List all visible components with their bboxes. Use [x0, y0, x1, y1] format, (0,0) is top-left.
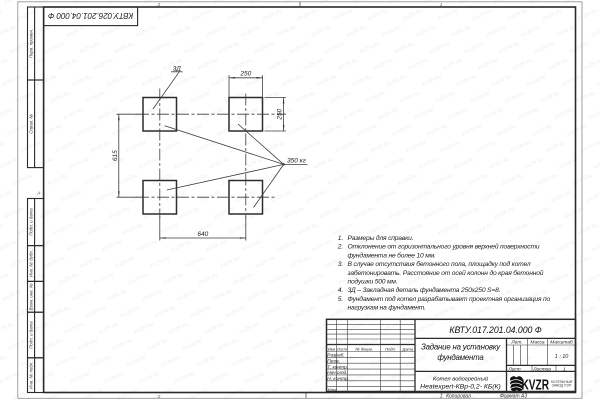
svg-text:KVZR.Ru: KVZR.Ru [47, 173, 69, 187]
svg-text:KVZR.Ru: KVZR.Ru [1, 288, 23, 302]
svg-text:KVZR.Ru: KVZR.Ru [580, 140, 600, 154]
svg-text:KVZR.Ru: KVZR.Ru [289, 255, 311, 269]
svg-text:KVZR.Ru: KVZR.Ru [112, 338, 134, 352]
svg-text:KVZR.Ru: KVZR.Ru [0, 57, 9, 71]
svg-text:KVZR.Ru: KVZR.Ru [464, 41, 486, 55]
svg-text:KVZR.Ru: KVZR.Ru [534, 255, 556, 269]
svg-text:KVZR.Ru: KVZR.Ru [542, 222, 564, 236]
svg-text:KVZR.Ru: KVZR.Ru [217, 338, 239, 352]
svg-text:KVZR.Ru: KVZR.Ru [542, 8, 564, 22]
svg-text:KVZR.Ru: KVZR.Ru [254, 41, 276, 55]
svg-text:KVZR.Ru: KVZR.Ru [114, 41, 136, 55]
svg-text:KVZR.Ru: KVZR.Ru [504, 90, 526, 104]
svg-text:KVZR.Ru: KVZR.Ru [472, 8, 494, 22]
svg-text:KVZR.Ru: KVZR.Ru [55, 354, 77, 368]
svg-text:KVZR.Ru: KVZR.Ru [485, 24, 507, 38]
svg-text:KVZR.Ru: KVZR.Ru [410, 189, 432, 203]
svg-text:KVZR.Ru: KVZR.Ru [593, 156, 600, 170]
svg-text:1 : 10: 1 : 10 [555, 354, 570, 360]
svg-text:KVZR.Ru: KVZR.Ru [127, 57, 149, 71]
svg-text:KVZR.Ru: KVZR.Ru [136, 239, 158, 253]
svg-text:KVZR.Ru: KVZR.Ru [22, 57, 44, 71]
svg-text:фундамента не более 10 мм.: фундамента не более 10 мм. [348, 251, 437, 259]
svg-text:KVZR.Ru: KVZR.Ru [71, 288, 93, 302]
svg-text:KVZR.Ru: KVZR.Ru [370, 140, 392, 154]
svg-text:KVZR.Ru: KVZR.Ru [386, 74, 408, 88]
svg-text:KVZR.Ru: KVZR.Ru [197, 57, 219, 71]
svg-text:KVZR.Ru: KVZR.Ru [399, 90, 421, 104]
svg-text:KVZR.Ru: KVZR.Ru [321, 123, 343, 137]
svg-text:KVZR.Ru: KVZR.Ru [588, 107, 600, 121]
svg-text:KVZR.Ru: KVZR.Ru [505, 305, 527, 319]
svg-text:4.: 4. [338, 287, 344, 294]
svg-text:KVZR.Ru: KVZR.Ru [477, 57, 499, 71]
svg-text:KVZR.Ru: KVZR.Ru [181, 123, 203, 137]
svg-text:KVZR.Ru: KVZR.Ru [74, 206, 96, 220]
svg-text:KVZR.Ru: KVZR.Ru [219, 41, 241, 55]
svg-text:KVZR.Ru: KVZR.Ru [0, 156, 20, 170]
svg-text:KVZR.Ru: KVZR.Ru [227, 8, 249, 22]
svg-text:KVZR.Ru: KVZR.Ru [518, 107, 540, 121]
svg-text:KVZR.Ru: KVZR.Ru [585, 189, 600, 203]
svg-text:KVZR.Ru: KVZR.Ru [303, 272, 325, 286]
svg-text:KVZR.Ru: KVZR.Ru [190, 305, 212, 319]
svg-text:KVZR.Ru: KVZR.Ru [305, 189, 327, 203]
svg-text:KVZR.Ru: KVZR.Ru [230, 140, 252, 154]
svg-text:KVZR.Ru: KVZR.Ru [0, 8, 4, 22]
svg-text:KVZR.Ru: KVZR.Ru [308, 107, 330, 121]
svg-text:KVZR.Ru: KVZR.Ru [493, 0, 515, 6]
svg-text:KVZR.Ru: KVZR.Ru [90, 140, 112, 154]
svg-text:KVZR.Ru: KVZR.Ru [0, 239, 18, 253]
svg-text:KVZR.Ru: KVZR.Ru [284, 206, 306, 220]
svg-text:Пров.: Пров. [327, 358, 340, 364]
svg-text:KVZR.Ru: KVZR.Ru [359, 41, 381, 55]
svg-text:KVZR.Ru: KVZR.Ru [292, 173, 314, 187]
svg-text:KVZR.Ru: KVZR.Ru [214, 206, 236, 220]
svg-text:KVZR.Ru: KVZR.Ru [345, 24, 367, 38]
svg-text:KVZR.Ru: KVZR.Ru [319, 206, 341, 220]
svg-text:KVZR.Ru: KVZR.Ru [300, 354, 322, 368]
svg-text:KVZR.Ru: KVZR.Ru [52, 222, 74, 236]
svg-text:250: 250 [239, 71, 251, 78]
svg-text:KVZR.Ru: KVZR.Ru [262, 222, 284, 236]
svg-text:KVZR.Ru: KVZR.Ru [547, 57, 569, 71]
svg-text:Листов: Листов [532, 366, 551, 372]
svg-text:KVZR.Ru: KVZR.Ru [243, 156, 265, 170]
svg-text:KVZR.Ru: KVZR.Ru [456, 74, 478, 88]
svg-text:KVZR.Ru: KVZR.Ru [108, 0, 130, 6]
svg-text:KVZR.Ru: KVZR.Ru [316, 288, 338, 302]
svg-text:KVZR.Ru: KVZR.Ru [574, 90, 596, 104]
svg-text:KVZR.Ru: KVZR.Ru [209, 371, 231, 385]
svg-text:KVZR.Ru: KVZR.Ru [426, 123, 448, 137]
svg-text:KVZR.Ru: KVZR.Ru [138, 156, 160, 170]
svg-text:5.: 5. [338, 296, 344, 303]
svg-text:KVZR.Ru: KVZR.Ru [44, 255, 66, 269]
svg-text:Масса: Масса [530, 339, 545, 345]
svg-text:KVZR.Ru: KVZR.Ru [432, 173, 454, 187]
svg-text:KVZR.Ru: KVZR.Ru [279, 371, 301, 385]
svg-text:Инв. № дубл.: Инв. № дубл. [29, 250, 34, 277]
svg-text:KVZR.Ru: KVZR.Ru [49, 90, 71, 104]
svg-text:KVZR.Ru: KVZR.Ru [302, 57, 324, 71]
svg-text:KVZR.Ru: KVZR.Ru [0, 321, 15, 335]
svg-text:KVZR.Ru: KVZR.Ru [402, 8, 424, 22]
svg-text:Лист: Лист [336, 346, 348, 351]
svg-text:KVZR.Ru: KVZR.Ru [295, 305, 317, 319]
svg-text:KVZR.Ru: KVZR.Ru [101, 239, 123, 253]
svg-text:№ докум.: № докум. [355, 346, 373, 351]
svg-text:KVZR.Ru: KVZR.Ru [450, 24, 472, 38]
svg-text:забетонировать. Расстояние от: забетонировать. Расстояние от осей колон… [347, 269, 544, 277]
svg-text:KVZR.Ru: KVZR.Ru [230, 354, 252, 368]
svg-text:KVZR.Ru: KVZR.Ru [125, 354, 147, 368]
svg-text:KVZR.Ru: KVZR.Ru [20, 140, 42, 154]
svg-text:KVZR.Ru: KVZR.Ru [55, 140, 77, 154]
svg-text:KVZR.Ru: KVZR.Ru [413, 107, 435, 121]
svg-text:KVZR.Ru: KVZR.Ru [93, 272, 115, 286]
svg-text:KVZR.Ru: KVZR.Ru [499, 41, 521, 55]
svg-text:KVZR.Ru: KVZR.Ru [82, 173, 104, 187]
svg-text:KVZR.Ru: KVZR.Ru [351, 74, 373, 88]
svg-text:KVZR.Ru: KVZR.Ru [114, 255, 136, 269]
svg-text:Отклонение от горизонтального: Отклонение от горизонтального уровня вер… [348, 243, 540, 251]
svg-text:KVZR.Ru: KVZR.Ru [23, 272, 45, 286]
svg-text:KVZR.Ru: KVZR.Ru [130, 189, 152, 203]
svg-text:KVZR.Ru: KVZR.Ru [139, 371, 161, 385]
svg-text:KVZR.Ru: KVZR.Ru [208, 156, 230, 170]
svg-text:KVZR.Ru: KVZR.Ru [0, 272, 10, 286]
svg-text:KVZR.Ru: KVZR.Ru [340, 189, 362, 203]
svg-text:KVZR.Ru: KVZR.Ru [182, 338, 204, 352]
svg-text:KVZR.Ru: KVZR.Ru [440, 140, 462, 154]
svg-text:KVZR.Ru: KVZR.Ru [95, 189, 117, 203]
svg-text:KVZR.Ru: KVZR.Ru [583, 272, 600, 286]
svg-text:KVZR.Ru: KVZR.Ru [558, 156, 580, 170]
svg-text:KVZR.Ru: KVZR.Ru [596, 288, 600, 302]
svg-text:KVZR.Ru: KVZR.Ru [424, 206, 446, 220]
svg-text:KVZR.Ru: KVZR.Ru [109, 206, 131, 220]
svg-text:KVZR.Ru: KVZR.Ru [523, 156, 545, 170]
svg-text:KVZR.Ru: KVZR.Ru [332, 8, 354, 22]
svg-text:KVZR.Ru: KVZR.Ru [515, 189, 537, 203]
svg-text:KVZR.Ru: KVZR.Ru [588, 321, 600, 335]
svg-text:KVZR.Ru: KVZR.Ru [421, 74, 443, 88]
svg-text:KVZR.Ru: KVZR.Ru [125, 140, 147, 154]
svg-text:KVZR.Ru: KVZR.Ru [200, 189, 222, 203]
svg-text:KVZR.Ru: KVZR.Ru [219, 255, 241, 269]
svg-text:KVZR.Ru: KVZR.Ru [168, 321, 190, 335]
svg-text:KVZR.Ru: KVZR.Ru [241, 239, 263, 253]
svg-text:KVZR.Ru: KVZR.Ru [561, 74, 583, 88]
svg-text:KVZR.Ru: KVZR.Ru [310, 24, 332, 38]
svg-text:250: 250 [277, 108, 284, 120]
svg-text:KVZR.Ru: KVZR.Ru [318, 0, 340, 6]
svg-text:KVZR.Ru: KVZR.Ru [160, 354, 182, 368]
svg-text:3Д: 3Д [173, 66, 182, 73]
svg-text:KVZR.Ru: KVZR.Ru [566, 123, 588, 137]
svg-text:KVZR.Ru: KVZR.Ru [265, 354, 287, 368]
svg-text:1: 1 [440, 2, 443, 7]
svg-text:KVZR.Ru: KVZR.Ru [133, 321, 155, 335]
svg-text:Перв. примен.: Перв. примен. [29, 29, 34, 58]
svg-text:KVZR.Ru: KVZR.Ru [0, 140, 7, 154]
svg-text:KVZR.Ru: KVZR.Ru [528, 0, 550, 6]
svg-text:KVZR.Ru: KVZR.Ru [512, 57, 534, 71]
svg-text:Нач.отд.: Нач.отд. [327, 370, 347, 376]
svg-text:KVZR.Ru: KVZR.Ru [248, 0, 270, 6]
svg-text:KVZR.Ru: KVZR.Ru [135, 24, 157, 38]
svg-text:KVZR.Ru: KVZR.Ru [50, 305, 72, 319]
svg-text:3.: 3. [338, 261, 344, 268]
svg-text:KVZR.Ru: KVZR.Ru [555, 24, 577, 38]
svg-text:KVZR.Ru: KVZR.Ru [561, 288, 583, 302]
svg-text:KVZR.Ru: KVZR.Ru [171, 239, 193, 253]
svg-text:KVZR.Ru: KVZR.Ru [397, 173, 419, 187]
svg-text:KVZR.Ru: KVZR.Ru [594, 371, 600, 385]
svg-text:KVZR.Ru: KVZR.Ru [529, 206, 551, 220]
svg-text:KVZR.Ru: KVZR.Ru [577, 8, 599, 22]
svg-text:KVZR.Ru: KVZR.Ru [445, 189, 467, 203]
svg-text:KVZR.Ru: KVZR.Ru [520, 24, 542, 38]
svg-text:KVZR.Ru: KVZR.Ru [38, 0, 60, 6]
svg-text:KVZR.Ru: KVZR.Ru [206, 239, 228, 253]
svg-text:KVZR.Ru: KVZR.Ru [407, 57, 429, 71]
svg-text:KVZR.Ru: KVZR.Ru [6, 123, 28, 137]
svg-text:KVZR.Ru: KVZR.Ru [189, 90, 211, 104]
svg-text:KVZR.Ru: KVZR.Ru [510, 140, 532, 154]
svg-text:KVZR.Ru: KVZR.Ru [111, 123, 133, 137]
svg-text:KVZR.Ru: KVZR.Ru [496, 123, 518, 137]
svg-text:1: 1 [440, 393, 443, 399]
svg-text:KVZR.Ru: KVZR.Ru [141, 288, 163, 302]
svg-text:KVZR.Ru: KVZR.Ru [596, 74, 600, 88]
svg-text:KVZR.Ru: KVZR.Ru [268, 272, 290, 286]
svg-text:KVZR.Ru: KVZR.Ru [300, 140, 322, 154]
svg-text:KVZR.Ru: KVZR.Ru [117, 173, 139, 187]
svg-text:KVZR.Ru: KVZR.Ru [418, 156, 440, 170]
svg-text:ЗАВОД РЭП: ЗАВОД РЭП [552, 384, 572, 388]
svg-text:KVZR.Ru: KVZR.Ru [434, 90, 456, 104]
svg-text:KVZR.Ru: KVZR.Ru [0, 24, 17, 38]
svg-text:Лист: Лист [507, 366, 520, 372]
svg-text:KVZR.Ru: KVZR.Ru [163, 272, 185, 286]
svg-text:KVZR.Ru: KVZR.Ru [66, 239, 88, 253]
svg-text:KVZR.Ru: KVZR.Ru [3, 0, 25, 6]
svg-text:KVZR.Ru: KVZR.Ru [262, 8, 284, 22]
svg-text:KVZR.Ru: KVZR.Ru [176, 74, 198, 88]
svg-text:KVZR.Ru: KVZR.Ru [160, 140, 182, 154]
svg-text:KVZR.Ru: KVZR.Ru [413, 321, 435, 335]
svg-text:KVZR.Ru: KVZR.Ru [34, 371, 56, 385]
svg-text:KVZR.Ru: KVZR.Ru [205, 24, 227, 38]
svg-text:KVZR.Ru: KVZR.Ru [198, 272, 220, 286]
svg-text:KVZR.Ru: KVZR.Ru [143, 0, 165, 6]
svg-text:KVZR.Ru: KVZR.Ru [106, 288, 128, 302]
svg-text:KVZR.Ru: KVZR.Ru [388, 0, 410, 6]
svg-text:KVZR.Ru: KVZR.Ru [1, 74, 23, 88]
svg-text:KVZR.Ru: KVZR.Ru [470, 305, 492, 319]
svg-text:KVZR.Ru: KVZR.Ru [488, 156, 510, 170]
svg-text:KVZR.Ru: KVZR.Ru [233, 272, 255, 286]
svg-text:KVZR.Ru: KVZR.Ru [0, 354, 7, 368]
svg-text:KVZR.Ru: KVZR.Ru [157, 8, 179, 22]
svg-text:KVZR.Ru: KVZR.Ru [356, 123, 378, 137]
svg-text:KVZR.Ru: KVZR.Ru [63, 321, 85, 335]
svg-text:KVZR.Ru: KVZR.Ru [192, 8, 214, 22]
svg-text:KVZR.Ru: KVZR.Ru [337, 57, 359, 71]
svg-text:KVZR.Ru: KVZR.Ru [380, 24, 402, 38]
svg-text:KVZR.Ru: KVZR.Ru [92, 57, 114, 71]
svg-text:KVZR.Ru: KVZR.Ru [343, 321, 365, 335]
svg-text:KVZR.Ru: KVZR.Ru [244, 371, 266, 385]
svg-text:KVZR.Ru: KVZR.Ru [378, 107, 400, 121]
svg-text:КВТУ.026.201.04.000 Ф: КВТУ.026.201.04.000 Ф [47, 11, 133, 20]
svg-text:KVZR.Ru: KVZR.Ru [106, 74, 128, 88]
svg-text:KVZR.Ru: KVZR.Ru [0, 90, 1, 104]
svg-text:KVZR.Ru: KVZR.Ru [435, 305, 457, 319]
svg-text:KVZR.Ru: KVZR.Ru [362, 173, 384, 187]
svg-text:KVZR.Ru: KVZR.Ru [104, 371, 126, 385]
svg-text:KVZR.Ru: KVZR.Ru [60, 189, 82, 203]
svg-text:KVZR.Ru: KVZR.Ru [76, 123, 98, 137]
svg-text:KVZR.Ru: KVZR.Ru [149, 255, 171, 269]
svg-text:KVZR.Ru: KVZR.Ru [526, 74, 548, 88]
svg-text:KVZR.Ru: KVZR.Ru [539, 90, 561, 104]
svg-text:KVZR.Ru: KVZR.Ru [590, 24, 600, 38]
svg-text:Масштаб: Масштаб [550, 339, 573, 345]
svg-text:KVZR.Ru: KVZR.Ru [289, 41, 311, 55]
svg-text:KVZR.Ru: KVZR.Ru [211, 288, 233, 302]
svg-text:KVZR.Ru: KVZR.Ru [367, 8, 389, 22]
svg-text:фундамента: фундамента [437, 353, 484, 362]
svg-text:KVZR.Ru: KVZR.Ru [467, 173, 489, 187]
svg-text:KVZR.Ru: KVZR.Ru [354, 206, 376, 220]
svg-text:KVZR.Ru: KVZR.Ru [0, 222, 4, 236]
svg-text:KVZR.Ru: KVZR.Ru [0, 189, 12, 203]
svg-text:KVZR.Ru: KVZR.Ru [84, 90, 106, 104]
svg-text:KVZR.Ru: KVZR.Ru [335, 140, 357, 154]
svg-text:KVZR.Ru: KVZR.Ru [575, 305, 597, 319]
svg-text:KVZR.Ru: KVZR.Ru [349, 371, 371, 385]
svg-text:KVZR.Ru: KVZR.Ru [273, 321, 295, 335]
svg-text:KVZR.Ru: KVZR.Ru [540, 305, 562, 319]
svg-text:Взам. инв. №: Взам. инв. № [29, 283, 34, 310]
svg-text:KVZR.Ru: KVZR.Ru [389, 206, 411, 220]
svg-text:KVZR: KVZR [522, 377, 550, 393]
svg-text:KVZR.Ru: KVZR.Ru [405, 140, 427, 154]
svg-text:Копировал: Копировал [446, 393, 471, 399]
svg-text:KVZR.Ru: KVZR.Ru [283, 0, 305, 6]
svg-text:KVZR.Ru: KVZR.Ru [491, 74, 513, 88]
svg-text:KVZR.Ru: KVZR.Ru [364, 90, 386, 104]
svg-text:Фундамент под котел разрабатыв: Фундамент под котел разрабатывает проект… [348, 295, 551, 303]
svg-text:Подп.: Подп. [385, 346, 396, 351]
svg-text:нагрузкам на фундамент.: нагрузкам на фундамент. [348, 304, 427, 312]
svg-text:Дата: Дата [402, 346, 414, 351]
svg-text:KVZR.Ru: KVZR.Ru [157, 222, 179, 236]
svg-text:КВТУ.017.201.04.000 Ф: КВТУ.017.201.04.000 Ф [449, 325, 541, 335]
svg-text:KVZR.Ru: KVZR.Ru [475, 140, 497, 154]
svg-text:KVZR.Ru: KVZR.Ru [294, 90, 316, 104]
svg-text:А: А [36, 191, 40, 196]
svg-text:подушки 500 мм.: подушки 500 мм. [348, 278, 398, 286]
svg-text:Разраб.: Разраб. [327, 353, 344, 359]
svg-text:KVZR.Ru: KVZR.Ru [184, 41, 206, 55]
svg-text:KVZR.Ru: KVZR.Ru [429, 41, 451, 55]
svg-text:Heatexpert-КВр-0,2- КБ(К): Heatexpert-КВр-0,2- КБ(К) [420, 384, 501, 391]
svg-text:KVZR.Ru: KVZR.Ru [267, 57, 289, 71]
svg-text:KVZR.Ru: KVZR.Ru [469, 90, 491, 104]
svg-text:KVZR.Ru: KVZR.Ru [0, 107, 15, 121]
svg-text:KVZR.Ru: KVZR.Ru [453, 156, 475, 170]
svg-text:KVZR.Ru: KVZR.Ru [372, 57, 394, 71]
svg-text:KVZR.Ru: KVZR.Ru [36, 288, 58, 302]
svg-text:KVZR.Ru: KVZR.Ru [71, 74, 93, 88]
svg-text:KVZR.Ru: KVZR.Ru [240, 24, 262, 38]
svg-text:KVZR.Ru: KVZR.Ru [238, 321, 260, 335]
svg-text:KVZR.Ru: KVZR.Ru [12, 173, 34, 187]
svg-text:KVZR.Ru: KVZR.Ru [147, 338, 169, 352]
svg-text:KVZR.Ru: KVZR.Ru [225, 305, 247, 319]
svg-text:KVZR.Ru: KVZR.Ru [507, 222, 529, 236]
svg-text:640: 640 [197, 231, 208, 238]
svg-text:2: 2 [157, 2, 161, 7]
svg-text:Справ. №: Справ. № [29, 114, 34, 134]
svg-text:KVZR.Ru: KVZR.Ru [437, 222, 459, 236]
svg-text:KVZR.Ru: KVZR.Ru [461, 123, 483, 137]
svg-text:KVZR.Ru: KVZR.Ru [287, 338, 309, 352]
svg-text:KVZR.Ru: KVZR.Ru [69, 371, 91, 385]
svg-text:3Д – Закладная деталь фундамен: 3Д – Закладная деталь фундамента 250х250… [348, 286, 501, 294]
svg-text:Т. контр.: Т. контр. [327, 364, 348, 370]
svg-text:KVZR.Ru: KVZR.Ru [275, 24, 297, 38]
svg-text:KVZR.Ru: KVZR.Ru [442, 57, 464, 71]
svg-text:KVZR.Ru: KVZR.Ru [480, 189, 502, 203]
svg-text:350 кг: 350 кг [287, 158, 307, 165]
svg-text:KVZR.Ru: KVZR.Ru [100, 24, 122, 38]
svg-text:KVZR.Ru: KVZR.Ru [297, 8, 319, 22]
svg-text:KVZR.Ru: KVZR.Ru [79, 255, 101, 269]
svg-text:KVZR.Ru: KVZR.Ru [260, 305, 282, 319]
svg-text:KVZR.Ru: KVZR.Ru [58, 272, 80, 286]
svg-text:KVZR.Ru: KVZR.Ru [246, 288, 268, 302]
svg-text:KVZR.Ru: KVZR.Ru [483, 107, 505, 121]
svg-text:KVZR.Ru: KVZR.Ru [120, 305, 142, 319]
svg-text:KVZR.Ru: KVZR.Ru [122, 222, 144, 236]
svg-text:KVZR.Ru: KVZR.Ru [155, 305, 177, 319]
svg-text:KVZR.Ru: KVZR.Ru [437, 8, 459, 22]
svg-text:KVZR.Ru: KVZR.Ru [77, 338, 99, 352]
svg-text:Н. контр.: Н. контр. [327, 376, 349, 382]
svg-text:KVZR.Ru: KVZR.Ru [316, 74, 338, 88]
svg-text:KVZR.Ru: KVZR.Ru [311, 239, 333, 253]
svg-text:KVZR.Ru: KVZR.Ru [281, 74, 303, 88]
svg-text:KVZR.Ru: KVZR.Ru [149, 41, 171, 55]
svg-text:KVZR.Ru: KVZR.Ru [144, 206, 166, 220]
svg-text:KVZR.Ru: KVZR.Ru [405, 354, 427, 368]
svg-text:Формат А3: Формат А3 [500, 393, 528, 399]
svg-text:KVZR.Ru: KVZR.Ru [370, 354, 392, 368]
svg-text:KVZR.Ru: KVZR.Ru [213, 0, 235, 6]
svg-text:KVZR.Ru: KVZR.Ru [348, 156, 370, 170]
svg-text:Задание на установку: Задание на установку [421, 342, 501, 351]
svg-text:1: 1 [563, 366, 566, 372]
svg-text:KVZR.Ru: KVZR.Ru [179, 206, 201, 220]
svg-text:KVZR.Ru: KVZR.Ru [203, 321, 225, 335]
svg-text:KVZR.Ru: KVZR.Ru [170, 24, 192, 38]
